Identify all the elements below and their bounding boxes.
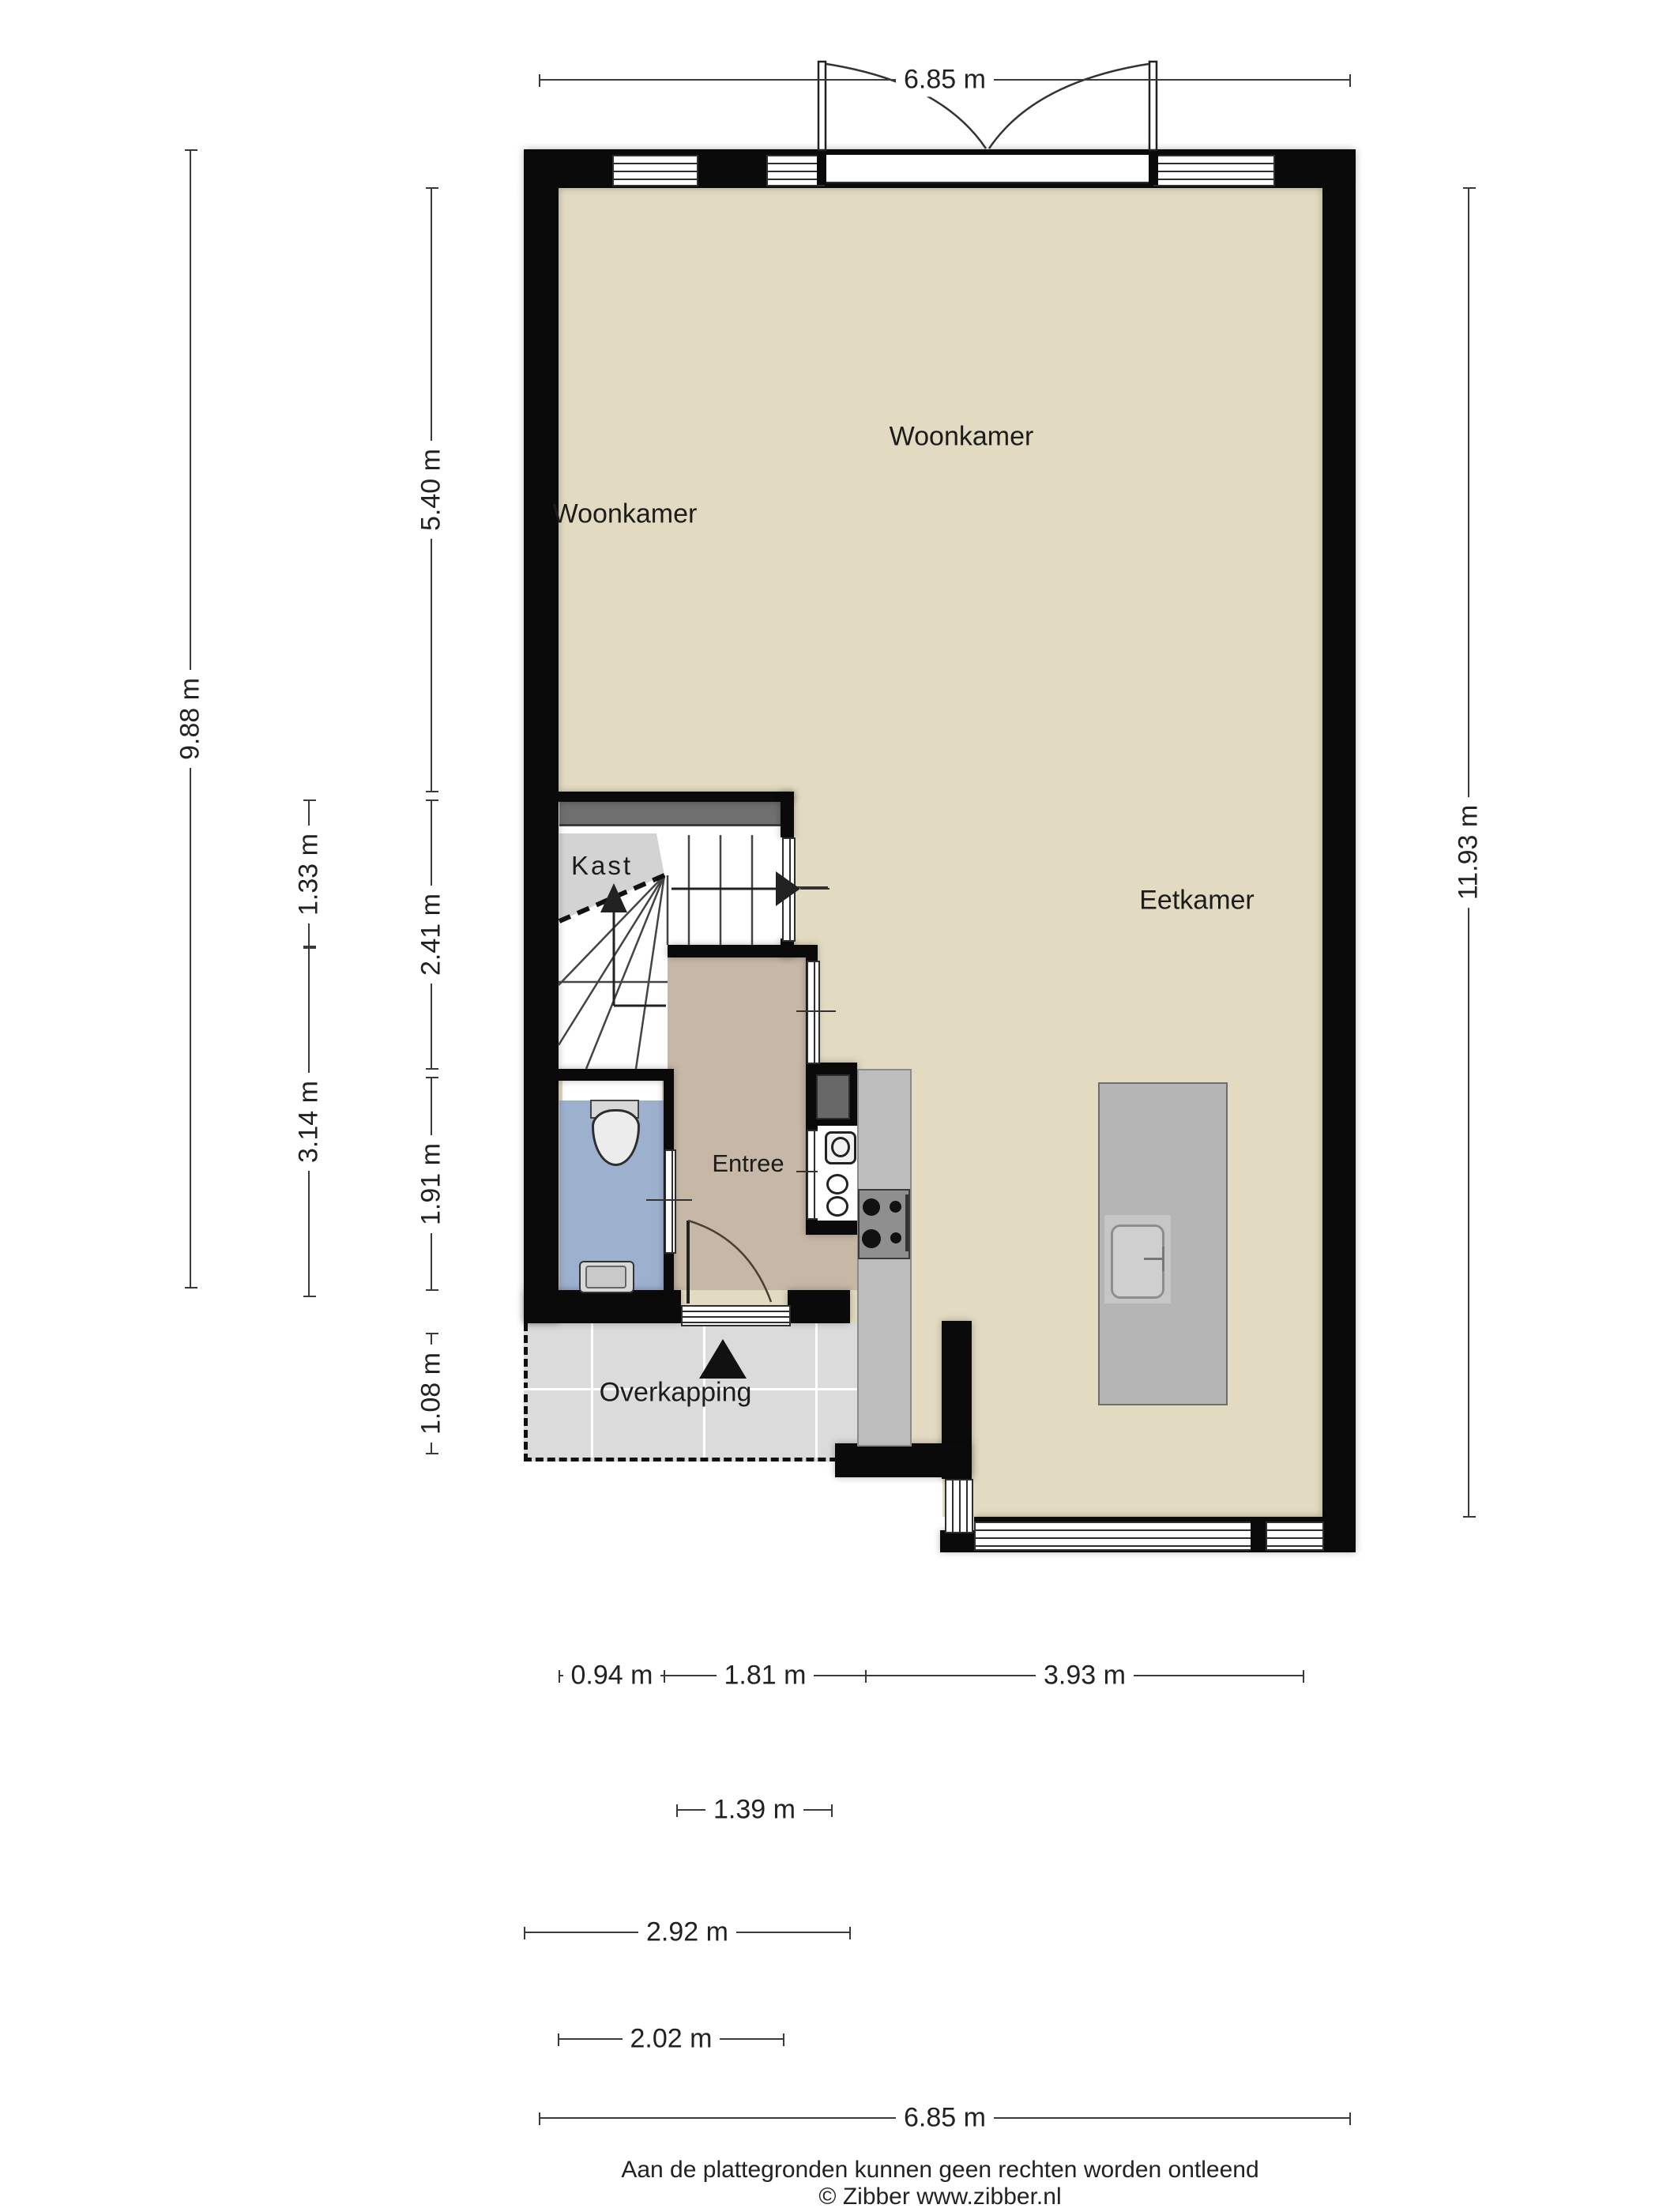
- floorplan-page: Woonkamer Woonkamer Eetkamer Kast Entree…: [0, 0, 1659, 2212]
- dim-bottom-total: 6.85 m: [540, 2117, 1350, 2119]
- dim-bottom-a: 0.94 m: [559, 1675, 664, 1676]
- dim-left-stairblock: 2.41 m: [431, 800, 432, 1069]
- dim-label: 6.85 m: [896, 63, 994, 97]
- dim-label: 11.93 m: [1452, 797, 1486, 908]
- dim-left-landing: 1.33 m: [308, 800, 310, 948]
- dim-label: 3.93 m: [1036, 1659, 1134, 1693]
- room-label-eetkamer: Eetkamer: [1139, 886, 1255, 916]
- dim-bottom-c: 3.93 m: [866, 1675, 1303, 1676]
- lineart-overlay: [0, 0, 1659, 2212]
- dim-label: 1.81 m: [717, 1659, 814, 1693]
- room-label-overkapping: Overkapping: [600, 1378, 752, 1409]
- dim-label: 1.33 m: [292, 826, 326, 924]
- copyright-text: © Zibber www.zibber.nl: [818, 2184, 1061, 2210]
- dim-label: 0.94 m: [563, 1659, 661, 1693]
- room-label-entree: Entree: [712, 1149, 784, 1178]
- dim-label: 9.88 m: [174, 670, 208, 768]
- dim-label: 2.41 m: [415, 886, 449, 984]
- room-label-kast: Kast: [571, 851, 633, 881]
- dim-label: 2.92 m: [638, 1916, 736, 1950]
- dim-label: 1.08 m: [415, 1345, 449, 1443]
- dim-bottom-door: 1.39 m: [677, 1809, 832, 1811]
- dim-bottom-b: 1.81 m: [664, 1675, 866, 1676]
- dim-bottom-block: 2.02 m: [559, 2038, 784, 2040]
- dim-label: 5.40 m: [415, 441, 449, 539]
- dim-left-total: 9.88 m: [190, 150, 191, 1288]
- front-door: [688, 1221, 771, 1303]
- dim-label: 3.14 m: [292, 1073, 326, 1171]
- dim-label: 2.02 m: [623, 2022, 720, 2056]
- dim-label: 1.91 m: [415, 1135, 449, 1233]
- dim-label: 6.85 m: [896, 2101, 994, 2135]
- dim-left-hall: 3.14 m: [308, 946, 310, 1296]
- dim-left-overkapping: 1.08 m: [431, 1334, 432, 1454]
- dim-right-height: 11.93 m: [1468, 188, 1469, 1517]
- dim-left-toilet: 1.91 m: [431, 1078, 432, 1290]
- dim-left-livingroom: 5.40 m: [431, 188, 432, 792]
- dim-top-width: 6.85 m: [540, 79, 1350, 81]
- room-label-woonkamer-left: Woonkamer: [553, 499, 698, 530]
- disclaimer-text: Aan de plattegronden kunnen geen rechten…: [621, 2157, 1258, 2184]
- stair-up-arrowhead: [600, 883, 627, 912]
- dim-label: 1.39 m: [705, 1793, 803, 1827]
- dim-bottom-overkapping: 2.92 m: [525, 1932, 850, 1933]
- stair-right-arrowhead: [776, 871, 800, 906]
- room-label-woonkamer: Woonkamer: [890, 422, 1034, 453]
